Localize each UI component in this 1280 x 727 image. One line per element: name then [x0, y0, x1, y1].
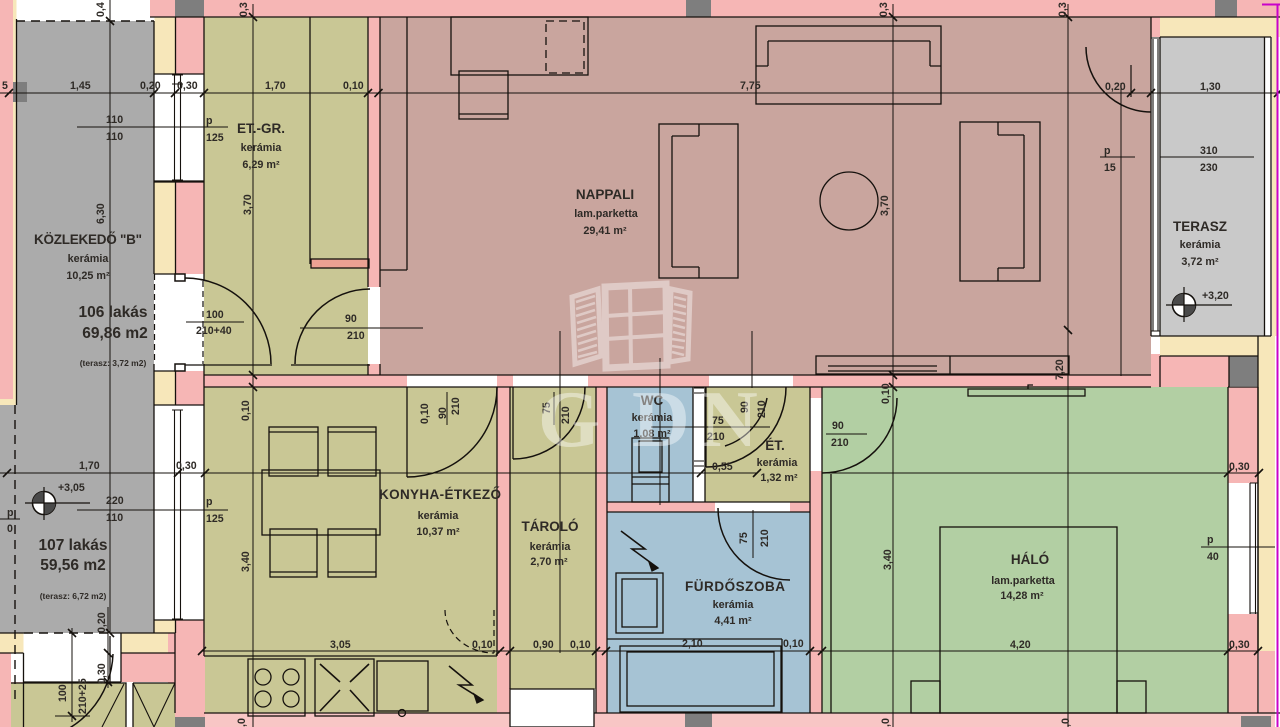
svg-text:7,20: 7,20: [1054, 359, 1066, 380]
svg-text:ÉT.: ÉT.: [765, 438, 785, 453]
svg-text:110: 110: [106, 114, 123, 126]
svg-text:G: G: [538, 376, 600, 464]
svg-text:p: p: [7, 507, 14, 519]
svg-text:110: 110: [106, 131, 123, 143]
svg-text:0: 0: [7, 523, 13, 535]
svg-text:3,70: 3,70: [242, 194, 254, 215]
svg-text:40: 40: [1207, 551, 1219, 563]
svg-text:29,41 m²: 29,41 m²: [583, 225, 627, 237]
svg-text:59,56 m2: 59,56 m2: [40, 557, 106, 574]
svg-text:2,70 m²: 2,70 m²: [530, 556, 568, 568]
svg-text:0,20: 0,20: [140, 80, 161, 92]
svg-text:210: 210: [831, 437, 849, 449]
svg-text:90: 90: [832, 420, 844, 432]
svg-text:106 lakás: 106 lakás: [79, 304, 148, 321]
svg-text:TERASZ: TERASZ: [1173, 219, 1227, 234]
svg-text:6,30: 6,30: [95, 203, 107, 224]
svg-text:2,10: 2,10: [682, 638, 703, 650]
svg-text:0,3: 0,3: [1057, 2, 1069, 17]
svg-text:kerámia: kerámia: [757, 457, 799, 469]
svg-text:0,10: 0,10: [472, 639, 493, 651]
svg-text:0,10: 0,10: [419, 403, 431, 424]
svg-text:3,72 m²: 3,72 m²: [1181, 256, 1219, 268]
svg-text:14,28 m²: 14,28 m²: [1000, 590, 1044, 602]
svg-text:220: 220: [106, 495, 124, 507]
svg-text:1,32 m²: 1,32 m²: [760, 472, 798, 484]
svg-text:0,30: 0,30: [177, 80, 198, 92]
svg-text:6,29 m²: 6,29 m²: [242, 159, 280, 171]
svg-text:kerámia: kerámia: [418, 510, 460, 522]
svg-text:210: 210: [756, 400, 768, 418]
svg-text:110: 110: [106, 512, 123, 524]
svg-text:0,10: 0,10: [240, 400, 252, 421]
svg-text:kerámia: kerámia: [713, 599, 755, 611]
svg-text:107 lakás: 107 lakás: [39, 537, 108, 554]
svg-text:100: 100: [57, 684, 69, 702]
svg-text:,0: ,0: [880, 718, 892, 727]
svg-text:p: p: [206, 496, 213, 508]
svg-text:5: 5: [2, 80, 8, 92]
svg-text:,0: ,0: [1060, 718, 1072, 727]
svg-text:0,90: 0,90: [533, 639, 554, 651]
svg-text:0,30: 0,30: [1229, 461, 1250, 473]
svg-text:p: p: [1207, 534, 1214, 546]
svg-text:0,30: 0,30: [176, 460, 197, 472]
svg-text:210: 210: [759, 529, 771, 547]
svg-text:KÖZLEKEDŐ "B": KÖZLEKEDŐ "B": [34, 232, 142, 247]
svg-text:210: 210: [450, 397, 462, 415]
svg-text:HÁLÓ: HÁLÓ: [1011, 552, 1049, 567]
svg-text:NAPPALI: NAPPALI: [576, 187, 634, 202]
svg-text:p: p: [1104, 145, 1111, 157]
svg-text:1,70: 1,70: [79, 460, 100, 472]
svg-text:0,10: 0,10: [783, 638, 804, 650]
svg-text:1,70: 1,70: [265, 80, 286, 92]
svg-text:3,70: 3,70: [879, 195, 891, 216]
svg-text:90: 90: [345, 313, 357, 325]
svg-text:(terasz: 3,72 m2): (terasz: 3,72 m2): [80, 358, 147, 368]
svg-text:lam.parketta: lam.parketta: [574, 208, 639, 220]
svg-text:0,10: 0,10: [570, 639, 591, 651]
svg-text:4,20: 4,20: [1010, 639, 1031, 651]
svg-text:90: 90: [437, 407, 449, 419]
svg-text:15: 15: [1104, 162, 1116, 174]
svg-text:0,4: 0,4: [95, 2, 107, 17]
svg-text:0,3: 0,3: [238, 2, 250, 17]
svg-text:0,30: 0,30: [1229, 639, 1250, 651]
svg-text:1,45: 1,45: [70, 80, 91, 92]
svg-text:230: 230: [1200, 162, 1218, 174]
svg-text:lam.parketta: lam.parketta: [991, 575, 1056, 587]
svg-text:0,10: 0,10: [880, 383, 892, 404]
svg-text:FÜRDŐSZOBA: FÜRDŐSZOBA: [685, 579, 785, 594]
svg-text:+3,20: +3,20: [1202, 290, 1229, 302]
svg-text:75: 75: [738, 532, 750, 544]
svg-text:125: 125: [206, 132, 224, 144]
svg-text:kerámia: kerámia: [530, 541, 572, 553]
svg-text:0,30: 0,30: [96, 663, 108, 684]
svg-text:310: 310: [1200, 145, 1218, 157]
svg-text:7,75: 7,75: [740, 80, 761, 92]
svg-text:125: 125: [206, 513, 224, 525]
svg-text:0,10: 0,10: [343, 80, 364, 92]
svg-text:3,05: 3,05: [330, 639, 351, 651]
svg-text:3,40: 3,40: [882, 549, 894, 570]
svg-text:4,41 m²: 4,41 m²: [714, 615, 752, 627]
svg-text:KONYHA-ÉTKEZŐ: KONYHA-ÉTKEZŐ: [379, 487, 501, 502]
svg-text:210+25: 210+25: [77, 678, 89, 714]
svg-text:100: 100: [206, 309, 224, 321]
svg-text:D: D: [632, 376, 690, 464]
svg-text:10,25 m²: 10,25 m²: [66, 270, 110, 282]
svg-text:0,3: 0,3: [878, 2, 890, 17]
svg-text:,0: ,0: [236, 718, 248, 727]
svg-text:kerámia: kerámia: [1180, 239, 1222, 251]
svg-text:10,37 m²: 10,37 m²: [416, 526, 460, 538]
svg-text:ET.-GR.: ET.-GR.: [237, 121, 285, 136]
svg-text:N: N: [700, 376, 758, 464]
svg-text:(terasz: 6,72 m2): (terasz: 6,72 m2): [40, 591, 107, 601]
svg-text:0,20: 0,20: [96, 612, 108, 633]
svg-text:TÁROLÓ: TÁROLÓ: [522, 519, 579, 534]
svg-text:210+40: 210+40: [196, 325, 232, 337]
svg-text:3,40: 3,40: [240, 551, 252, 572]
svg-text:kerámia: kerámia: [68, 253, 110, 265]
svg-text:210: 210: [347, 330, 365, 342]
svg-text:0,20: 0,20: [1105, 81, 1126, 93]
svg-text:kerámia: kerámia: [241, 142, 283, 154]
svg-text:+3,05: +3,05: [58, 482, 85, 494]
svg-text:p: p: [206, 115, 213, 127]
svg-text:69,86 m2: 69,86 m2: [82, 325, 148, 342]
svg-text:1,30: 1,30: [1200, 81, 1221, 93]
